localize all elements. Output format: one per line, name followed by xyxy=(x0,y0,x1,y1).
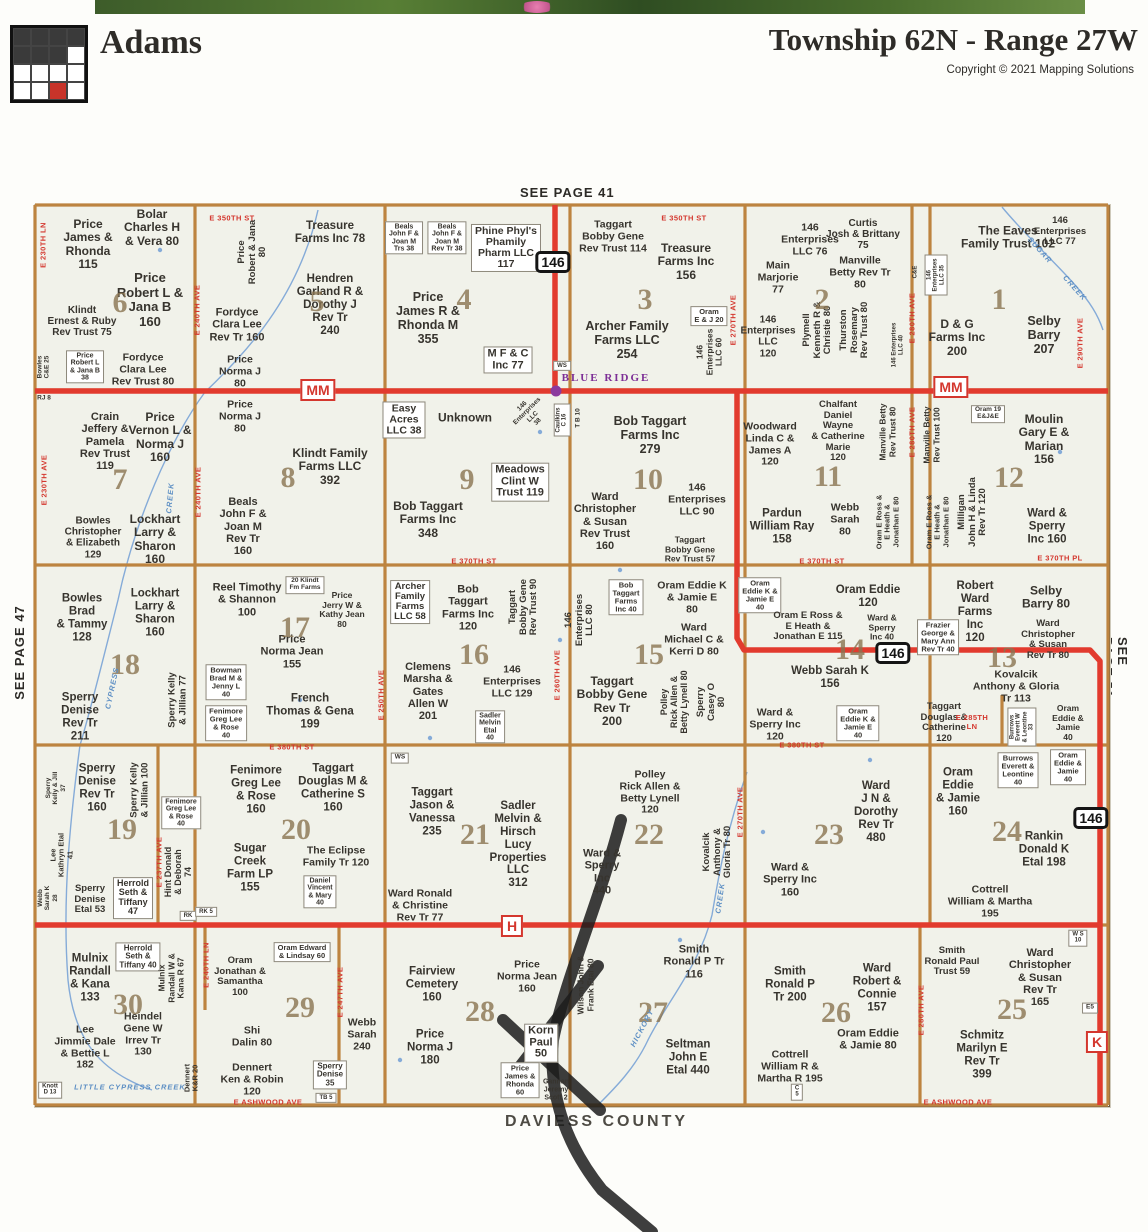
parcel-label: Sugar Creek Farm LP 155 xyxy=(227,842,273,894)
parcel-label: The Eclipse Family Tr 120 xyxy=(303,845,370,869)
parcel-label: Oram E Ross & E Heath & Jonathan E 115 xyxy=(773,611,842,643)
parcel-label: Smith Ronald P Tr 116 xyxy=(664,944,725,981)
parcel-label: Shi Dalin 80 xyxy=(232,1025,272,1049)
parcel-label: Manville Betty Rev Trust 80 xyxy=(878,403,897,460)
parcel-label: Fordyce Clara Lee Rev Tr 160 xyxy=(209,307,264,344)
parcel-label: Frazier George & Mary Ann Rev Tr 40 xyxy=(917,619,959,655)
parcel-label: Lee Kathryn Etal 41 xyxy=(49,833,74,877)
plat-map-page: Adams Township 62N - Range 27W Copyright… xyxy=(0,0,1148,1232)
parcel-label: W S 10 xyxy=(1068,930,1087,947)
parcel-label: Hint Donald & Deborah 74 xyxy=(163,847,193,898)
section-number: 28 xyxy=(465,995,495,1029)
parcel-label: Treasure Farms Inc 78 xyxy=(295,220,365,246)
parcel-label: Schmitz Marilyn E Rev Tr 399 xyxy=(956,1029,1007,1081)
parcel-label: Dennert Ken & Robin 120 xyxy=(221,1062,284,1097)
road-name-label: E 230TH AVE xyxy=(40,455,49,506)
parcel-label: Smith Ronald Paul Trust 59 xyxy=(925,946,980,978)
parcel-label: Caulkins C 16 xyxy=(554,403,571,436)
parcel-label: Sperry Kelly & Jill 37 xyxy=(45,772,67,805)
parcel-label: 146 Enterprises LLC 120 xyxy=(740,315,795,360)
parcel-label: Lee Jimmie Dale & Bettie L 182 xyxy=(54,1025,115,1072)
section-number: 5 xyxy=(310,285,325,319)
road-name-label: E 240TH LN xyxy=(202,942,211,988)
parcel-label: Klindt Family Farms LLC 392 xyxy=(292,447,367,487)
section-number: 24 xyxy=(992,815,1022,849)
section-number: 12 xyxy=(994,461,1024,495)
parcel-label: Sperry Kelly & Jillian 100 xyxy=(129,762,150,817)
parcel-label: Fenimore Greg Lee & Rose 40 xyxy=(161,796,201,829)
parcel-label: 146 Enterprises LLC 129 xyxy=(483,664,541,699)
parcel-label: Fenimore Greg Lee & Rose 160 xyxy=(230,764,282,816)
parcel-label: Sadler Melvin Etal 40 xyxy=(475,710,505,743)
parcel-label: 146 Enterprises LLC 35 xyxy=(925,254,948,295)
parcel-label: Curtis Josh & Brittany 75 xyxy=(826,218,900,252)
parcel-label: Bob Taggart Farms Inc 279 xyxy=(614,414,687,456)
parcel-label: Bowles Brad & Tammy 128 xyxy=(57,592,108,644)
parcel-label: Sperry Kelly & Jillian 77 xyxy=(167,672,188,727)
parcel-label: Archer Family Farms LLC 254 xyxy=(585,319,668,361)
parcel-label: Smith Ronald P Tr 200 xyxy=(765,966,815,1005)
parcel-label: Taggart Bobby Gene Rev Trust 114 xyxy=(579,219,647,254)
parcel-label: 146 Enterprises LLC 60 xyxy=(696,329,725,376)
section-number: 8 xyxy=(281,461,296,495)
parcel-label: Oram Eddie K & Jamie E 80 xyxy=(657,580,726,615)
parcel-label: Beals John F & Joan M Trs 38 xyxy=(385,221,423,254)
section-number: 17 xyxy=(280,611,310,645)
parcel-label: D & G Farms Inc 200 xyxy=(929,318,986,358)
parcel-label: Herrold Seth & Tiffany 47 xyxy=(113,877,153,919)
section-number: 21 xyxy=(460,818,490,852)
section-number: 10 xyxy=(633,463,663,497)
parcel-label: Sperry Denise 35 xyxy=(313,1060,347,1089)
parcel-label: Lockhart Larry & Sharon 160 xyxy=(130,513,181,567)
section-number: 13 xyxy=(987,641,1017,675)
parcel-label: Bob Taggart Farms Inc 120 xyxy=(442,583,494,632)
road-name-label: E 280TH AVE xyxy=(908,407,917,458)
route-badge-MM: MM xyxy=(300,379,335,401)
parcel-label: Bob Taggart Farms Inc 348 xyxy=(393,500,463,540)
road-name-label: E 260TH AVE xyxy=(553,650,562,701)
section-number: 6 xyxy=(113,286,128,320)
parcel-label: Price Norma J 80 xyxy=(219,399,261,434)
town-label: BLUE RIDGE xyxy=(562,372,651,384)
road-name-label: E 240TH AVE xyxy=(193,285,202,336)
route-badge-MM: MM xyxy=(933,376,968,398)
parcel-label: Oram Eddie & Jamie 80 xyxy=(837,1028,899,1053)
section-number: 1 xyxy=(992,283,1007,317)
parcel-label: Sperry Denise Rev Tr 160 xyxy=(78,762,116,814)
creek-name-label: LITTLE CYPRESS CREEK xyxy=(74,1083,186,1092)
parcel-label: Ward Robert & Connie 157 xyxy=(853,962,902,1014)
parcel-label: Thurston Rosemary Rev Trust 80 xyxy=(839,302,871,359)
parcel-label: Price Norma J 180 xyxy=(407,1029,453,1068)
parcel-label: Lockhart Larry & Sharon 160 xyxy=(131,587,180,639)
road-name-label: E 250TH AVE xyxy=(377,670,386,721)
parcel-label: Phine Phyl's Phamily Pharm LLC 117 xyxy=(471,224,541,272)
parcel-label: Price James R & Rhonda M 355 xyxy=(396,290,460,346)
parcel-label: Chalfant Daniel Wayne & Catherine Marie … xyxy=(811,400,864,464)
section-number: 19 xyxy=(107,813,137,847)
parcel-label: Price Robert & Jana 80 xyxy=(237,220,269,284)
parcel-label: Ward & Sperry Inc 440 xyxy=(583,847,621,896)
road-name-label: E 247TH AVE xyxy=(336,967,345,1018)
parcel-label: Ward Ronald & Christine Rev Tr 77 xyxy=(388,888,452,923)
road-name-label: E 237TH AVE xyxy=(155,837,164,888)
parcel-label: Robert Ward Farms Inc 120 xyxy=(956,580,993,644)
parcel-label: Bowles C&E 25 xyxy=(37,356,52,379)
parcel-label: Polley Rick Allen & Betty Lynell 120 xyxy=(620,770,681,817)
parcel-label: C&E xyxy=(913,266,920,279)
road-name-label: E 380TH ST xyxy=(779,741,824,750)
parcel-label: French Thomas & Gena 199 xyxy=(266,693,354,732)
route-badge-K: K xyxy=(1086,1031,1108,1053)
parcel-label: Webb Sarah K 156 xyxy=(791,665,869,691)
road-name-label: E 370TH ST xyxy=(451,557,496,566)
parcel-label: Price Norma J 80 xyxy=(219,354,261,389)
parcel-label: Fordyce Clara Lee Rev Trust 80 xyxy=(112,352,174,387)
section-number: 11 xyxy=(814,460,842,494)
parcel-label: Unknown xyxy=(438,411,492,424)
road-name-label: E ASHWOOD AVE xyxy=(234,1098,303,1107)
parcel-label: Manville Betty Rev Trust 100 xyxy=(922,406,941,463)
parcel-label: Burrows Everett & Leontine 40 xyxy=(998,752,1039,788)
parcel-label: Oram 19 E&J&E xyxy=(971,405,1005,423)
parcel-label: Oram E Ross & E Heath & Jonathan E 80 xyxy=(925,495,950,550)
parcel-label: Wilson John & Frank Etal 80 xyxy=(576,956,595,1015)
section-number: 29 xyxy=(285,991,315,1025)
road-name-label: E 280TH AVE xyxy=(917,985,926,1036)
route-badge-146: 146 xyxy=(535,251,570,273)
parcel-label: Ward & Sperry Inc 120 xyxy=(749,707,800,742)
creek-name-label: CREEK xyxy=(164,482,176,514)
parcel-label: T B 10 xyxy=(574,408,581,428)
parcel-label: Price James & Rhonda 115 xyxy=(63,218,112,272)
parcel-label: Price Robert L & Jana B 38 xyxy=(66,350,104,383)
route-badge-146: 146 xyxy=(875,642,910,664)
road-name-label: E 285TH LN xyxy=(956,713,988,731)
parcel-label: Oram Eddie & Jamie 40 xyxy=(1052,704,1084,742)
creek-name-label: CREEK xyxy=(1061,273,1089,302)
parcel-label: Taggart Bobby Gene Rev Trust 90 xyxy=(508,579,540,636)
road-name-label: E 270TH AVE xyxy=(736,787,745,838)
parcel-label: Webb Sarah 240 xyxy=(347,1017,376,1052)
route-badge-146: 146 xyxy=(1073,807,1108,829)
parcel-label: Selby Barry 207 xyxy=(1027,314,1060,356)
parcel-label: Ward & Sperry Inc 160 xyxy=(1027,508,1067,547)
parcel-label: Reel Timothy & Shannon 100 xyxy=(213,582,282,619)
parcel-label: Fairview Cemetery 160 xyxy=(406,966,458,1005)
parcel-label: Dennert K&R 20 xyxy=(184,1064,201,1092)
parcel-label: Price Vernon L & Norma J 160 xyxy=(128,411,191,465)
parcel-label: Ward J N & Dorothy Rev Tr 480 xyxy=(854,780,898,844)
parcel-label: Gannan Jeremy Scott 2 xyxy=(543,1078,569,1101)
section-number: 30 xyxy=(113,988,143,1022)
parcel-label: WS xyxy=(553,361,571,371)
parcel-label: Archer Family Farms LLC 58 xyxy=(390,580,430,624)
parcel-label: 146 Enterprises LLC 77 xyxy=(1034,216,1086,248)
parcel-label: Ward Christopher & Susan Rev Trust 160 xyxy=(574,491,636,553)
parcel-label: Ward & Sperry Inc 40 xyxy=(867,614,896,643)
parcel-label: Kovalcik Anthony & Gloria Tr 80 xyxy=(702,826,734,878)
parcel-label: Sperry Denise Etal 53 xyxy=(74,884,105,916)
parcel-label: Ward & Sperry Inc 160 xyxy=(763,862,817,899)
parcel-label: Clemens Marsha & Gates Allen W 201 xyxy=(403,661,453,723)
parcel-label: Oram Edward & Lindsay 60 xyxy=(274,942,331,962)
parcel-label: Easy Acres LLC 38 xyxy=(382,401,425,438)
parcel-label: Mulnix Randall W & Kana R 67 xyxy=(158,953,187,1003)
parcel-label: Oram Eddie 120 xyxy=(836,584,901,610)
parcel-label: Fenimore Greg Lee & Rose 40 xyxy=(205,705,247,741)
parcel-label: Daniel Vincent & Mary 40 xyxy=(303,875,336,908)
parcel-label: Bowles Christopher & Elizabeth 129 xyxy=(65,516,122,561)
parcel-label: TB 5 xyxy=(315,1093,336,1103)
parcel-label: Meadows Clint W Trust 119 xyxy=(491,463,549,502)
parcel-label: Cottrell William R & Martha R 195 xyxy=(757,1049,822,1084)
parcel-label: Klindt Ernest & Ruby Rev Trust 75 xyxy=(48,305,117,339)
section-number: 26 xyxy=(821,996,851,1030)
parcel-label: Taggart Bobby Gene Rev Tr 200 xyxy=(577,675,648,729)
parcel-label: Manville Betty Rev Tr 80 xyxy=(829,255,890,290)
parcel-label: RK 5 xyxy=(195,907,217,917)
parcel-label: Knott D 13 xyxy=(38,1082,62,1099)
parcel-label: 146 Enterprises LLC 80 xyxy=(564,594,596,646)
road-name-label: E 290TH AVE xyxy=(1076,318,1085,369)
parcel-label: 146 Enterprises LLC 90 xyxy=(668,482,726,517)
parcel-label: Webb Sarah K 28 xyxy=(37,886,59,911)
parcel-label: Bob Taggart Farms Inc 40 xyxy=(609,579,644,615)
parcel-label: Milligan John H & Linda Rev Tr 120 xyxy=(957,477,989,547)
section-number: 22 xyxy=(634,818,664,852)
section-number: 16 xyxy=(459,638,489,672)
parcel-label: Selby Barry 80 xyxy=(1022,585,1070,612)
road-name-label: E ASHWOOD AVE xyxy=(924,1098,993,1107)
parcel-label: Oram E Ross & E Heath & Jonathan E 80 xyxy=(875,495,900,550)
parcel-label: Herrold Seth & Tiffany 40 xyxy=(115,942,160,971)
parcel-label: Bolar Charles H & Vera 80 xyxy=(124,208,180,248)
section-number: 4 xyxy=(457,283,472,317)
parcel-label: Price Jerry W & Kathy Jean 80 xyxy=(319,591,364,629)
road-name-label: E 240TH AVE xyxy=(194,467,203,518)
section-number: 9 xyxy=(460,463,475,497)
road-name-label: E 370TH PL xyxy=(1037,554,1082,563)
parcel-label: Treasure Farms Inc 156 xyxy=(658,242,715,282)
parcel-label: Beals John F & Joan M Rev Tr 160 xyxy=(219,496,266,558)
parcel-label: Pardun William Ray 158 xyxy=(750,508,814,547)
parcel-label: Oram Eddie & Jamie 160 xyxy=(936,766,980,818)
parcel-label: Sadler Melvin & Hirsch Lucy Properties L… xyxy=(490,800,547,890)
parcel-label: Rankin Donald K Etal 198 xyxy=(1019,831,1069,870)
parcel-label: Sperry Casey O 80 xyxy=(696,683,728,721)
parcel-label: Mulnix Randall & Kana 133 xyxy=(69,952,111,1004)
road-name-label: E 350TH ST xyxy=(209,214,254,223)
parcel-label: Korn Paul 50 xyxy=(524,1024,558,1063)
parcel-label: Price James & Rhonda 60 xyxy=(501,1062,540,1098)
road-name-label: E 380TH ST xyxy=(269,743,314,752)
section-number: 25 xyxy=(997,993,1027,1027)
parcel-label: Moulin Gary E & Marian 156 xyxy=(1019,413,1070,467)
section-number: 23 xyxy=(814,818,844,852)
parcel-label: Beals John F & Joan M Rev Tr 38 xyxy=(427,221,466,254)
parcel-label: Oram Eddie K & Jamie E 40 xyxy=(836,705,879,741)
parcel-label: Oram Eddie K & Jamie E 40 xyxy=(738,577,781,613)
section-number: 20 xyxy=(281,813,311,847)
parcel-label: Oram Jonathan & Samantha 100 xyxy=(214,956,266,999)
parcel-label: Webb Sarah 80 xyxy=(830,502,859,537)
parcel-label: Oram E & J 20 xyxy=(690,306,727,326)
parcel-label: Hendren Garland R & Dorothy J Rev Tr 240 xyxy=(297,273,363,337)
parcel-label: Oram Eddie & Jamie 40 xyxy=(1050,749,1086,785)
creek-name-label: CYPRESS xyxy=(103,666,121,710)
parcel-label: Taggart Jason & Vanessa 235 xyxy=(409,786,455,838)
section-number: 2 xyxy=(815,283,830,317)
road-name-label: E 280TH AVE xyxy=(908,293,917,344)
parcel-label: Taggart Douglas M & Catherine S 160 xyxy=(298,762,368,814)
road-name-label: E 350TH ST xyxy=(661,214,706,223)
parcel-label: Price Norma Jean 160 xyxy=(497,959,557,994)
road-name-label: E 370TH ST xyxy=(799,557,844,566)
parcel-label: C 5 xyxy=(791,1084,803,1101)
parcel-label: Ward Christopher & Susan Rev Tr 80 xyxy=(1021,619,1075,662)
parcel-label: Seltman John E Etal 440 xyxy=(666,1039,711,1078)
parcel-label: Taggart Bobby Gene Rev Trust 57 xyxy=(665,536,716,565)
parcel-label: M F & C Inc 77 xyxy=(484,346,533,373)
road-name-label: E 270TH AVE xyxy=(729,295,738,346)
parcel-label: Polley Rick Allen & Betty Lynell 80 xyxy=(659,670,689,733)
parcel-label: Burrows Everett W & Leontine 33 xyxy=(1007,708,1036,747)
parcel-label: E5 xyxy=(1082,1003,1098,1014)
parcel-label: WS xyxy=(391,753,409,764)
section-number: 15 xyxy=(634,638,664,672)
map-labels-layer: Price James & Rhonda 115Bolar Charles H … xyxy=(0,0,1148,1232)
route-badge-H: H xyxy=(501,915,523,937)
parcel-label: Sperry Denise Rev Tr 211 xyxy=(61,691,99,743)
parcel-label: Woodward Linda C & James A 120 xyxy=(743,422,796,469)
parcel-label: 146 Enterprises LLC 40 xyxy=(891,323,904,368)
parcel-label: RJ 8 xyxy=(37,394,51,401)
section-number: 3 xyxy=(638,283,653,317)
parcel-label: Cottrell William & Martha 195 xyxy=(948,884,1033,919)
parcel-label: 146 Enterprises LLC 38 xyxy=(507,391,553,437)
parcel-label: Ward Michael C & Kerri D 80 xyxy=(664,622,724,657)
road-name-label: E 230TH LN xyxy=(39,222,48,268)
section-number: 7 xyxy=(113,463,128,497)
parcel-label: Main Marjorie 77 xyxy=(758,260,799,295)
section-number: 14 xyxy=(835,633,865,667)
parcel-label: RK xyxy=(180,911,197,921)
parcel-label: Bowman Brad M & Jenny L 40 xyxy=(206,664,247,700)
creek-name-label: CREEK xyxy=(713,882,726,914)
